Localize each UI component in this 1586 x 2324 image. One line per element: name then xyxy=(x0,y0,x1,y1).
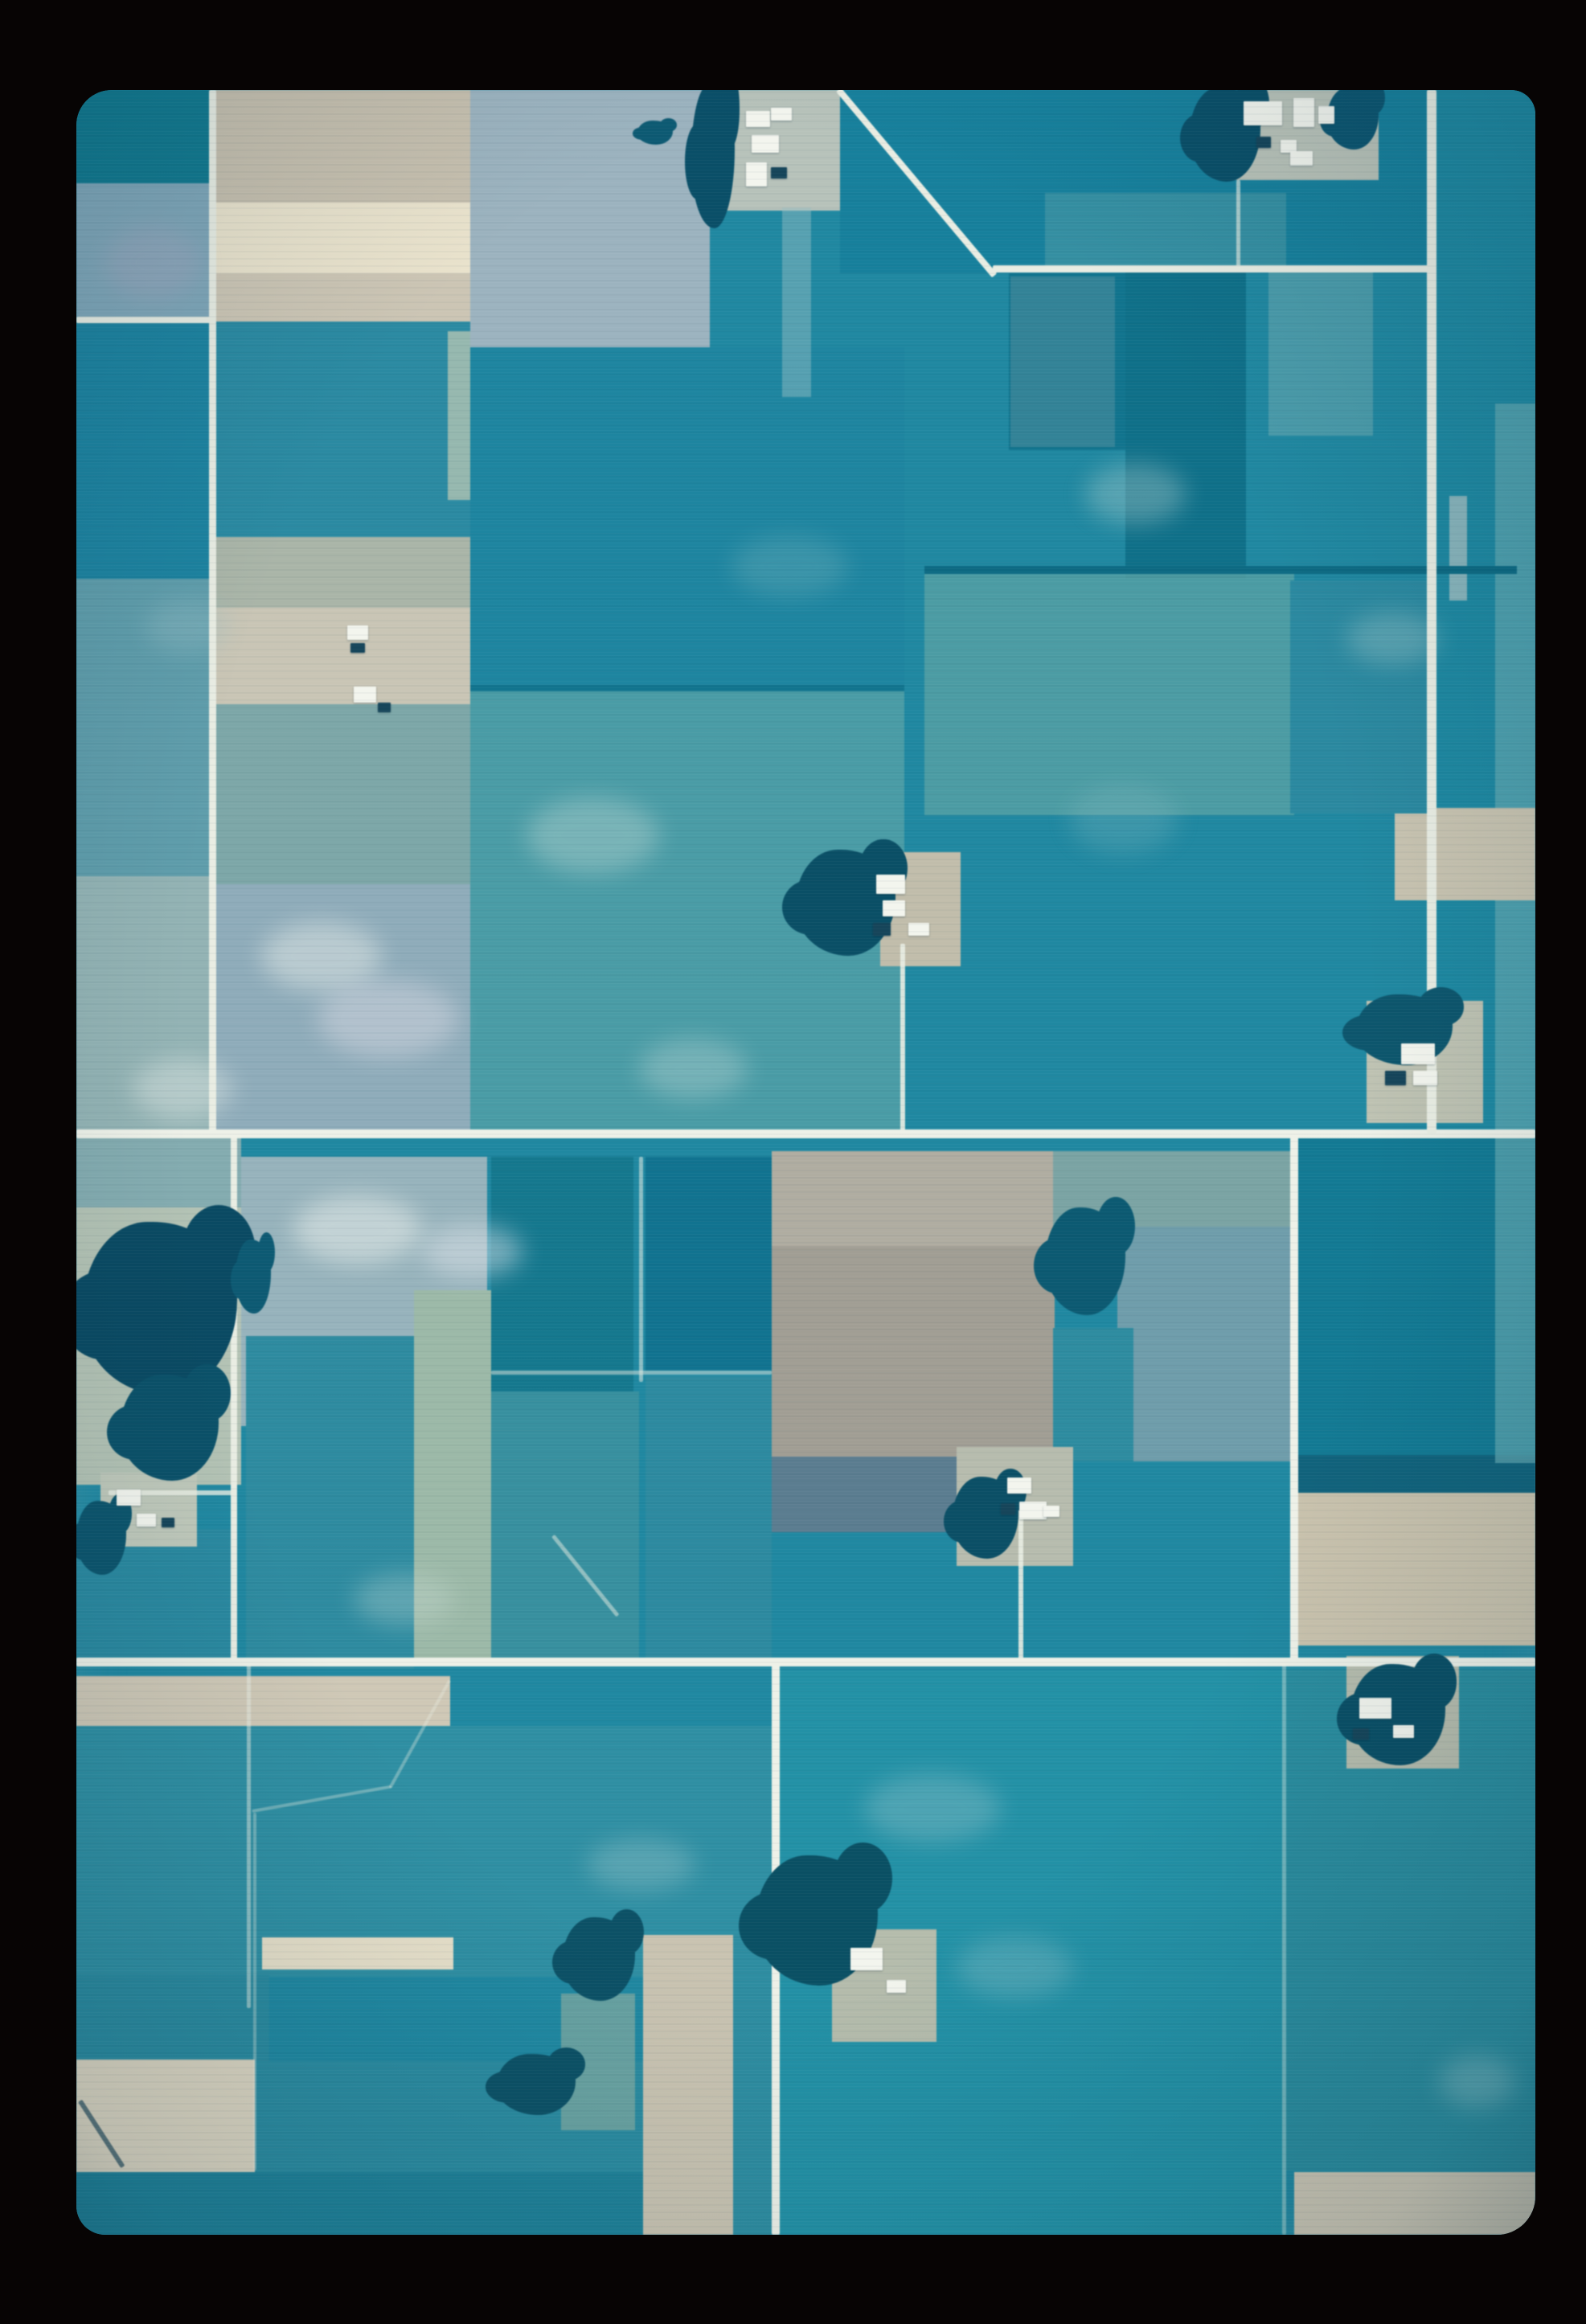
section-road xyxy=(1290,1135,1298,1662)
field-region xyxy=(733,1935,772,2235)
farm-building xyxy=(1353,1728,1369,1740)
farm-building xyxy=(887,1980,906,1993)
light-soil-patch xyxy=(261,922,382,990)
field-region xyxy=(1395,808,1535,900)
farm-building xyxy=(876,875,905,894)
light-soil-patch xyxy=(293,1195,422,1264)
field-region xyxy=(491,1392,639,1660)
tree-cluster xyxy=(796,850,895,956)
field-region xyxy=(211,608,470,704)
farm-building xyxy=(850,1948,883,1970)
light-soil-patch xyxy=(105,227,201,299)
field-region xyxy=(645,1157,772,1371)
field-region xyxy=(1117,1227,1294,1461)
light-soil-patch xyxy=(354,1573,454,1625)
light-soil-patch xyxy=(145,600,229,653)
light-soil-patch xyxy=(864,1774,1001,1842)
field-region xyxy=(215,203,470,273)
film-slide-mount: { "meta": { "type": "aerial-photo-film-s… xyxy=(0,0,1586,2324)
field-region xyxy=(76,1676,450,1726)
light-soil-patch xyxy=(1069,785,1178,854)
section-road xyxy=(253,1813,256,2170)
field-region xyxy=(76,90,211,183)
light-soil-patch xyxy=(1439,2056,1515,2108)
field-region xyxy=(1053,1328,1133,1461)
tree-cluster xyxy=(236,1240,271,1314)
light-soil-patch xyxy=(422,1225,523,1277)
field-region xyxy=(211,704,470,884)
farm-building xyxy=(354,687,376,703)
farm-building xyxy=(1393,1725,1414,1738)
farmland-scene xyxy=(76,90,1535,2235)
light-soil-patch xyxy=(527,797,659,874)
section-road xyxy=(209,90,216,1135)
field-region xyxy=(1495,404,1535,1133)
farm-building xyxy=(771,167,787,178)
field-region xyxy=(772,1151,1055,1246)
light-soil-patch xyxy=(318,981,458,1057)
farm-building xyxy=(1359,1698,1391,1719)
section-road xyxy=(76,1658,1535,1666)
field-region xyxy=(1298,1493,1535,1646)
farm-building xyxy=(873,923,891,936)
field-region xyxy=(645,1376,772,1660)
farm-building xyxy=(1001,1503,1015,1514)
section-road xyxy=(247,1664,251,2008)
field-region xyxy=(782,207,811,397)
light-soil-patch xyxy=(1085,464,1186,524)
farm-building xyxy=(347,625,368,640)
field-region xyxy=(470,347,904,688)
section-road xyxy=(1236,180,1240,268)
field-region xyxy=(1495,1133,1535,1463)
field-region xyxy=(491,1157,633,1392)
field-region xyxy=(1045,193,1286,270)
field-region xyxy=(1449,496,1467,600)
farm-building xyxy=(883,900,905,916)
farm-building xyxy=(908,923,929,936)
tree-cluster xyxy=(121,1375,219,1481)
tree-cluster xyxy=(563,1917,635,2001)
farm-building xyxy=(1293,98,1314,127)
section-road xyxy=(639,1157,643,1382)
farm-building xyxy=(117,1490,141,1506)
light-soil-patch xyxy=(1346,613,1439,665)
farm-building xyxy=(1413,1071,1437,1085)
light-soil-patch xyxy=(732,536,848,596)
farm-building xyxy=(1007,1478,1031,1494)
field-region xyxy=(1010,277,1115,447)
section-road xyxy=(993,265,1433,273)
farm-building xyxy=(752,135,779,153)
tree-cluster xyxy=(1045,1207,1125,1315)
section-road xyxy=(900,944,905,1130)
tree-cluster xyxy=(76,1501,126,1575)
farm-building xyxy=(1043,1506,1059,1517)
farm-building xyxy=(746,162,767,186)
section-road xyxy=(491,1371,772,1375)
field-region xyxy=(1268,271,1373,436)
field-region xyxy=(215,90,470,203)
farm-building xyxy=(771,108,792,121)
farm-building xyxy=(1385,1071,1406,1085)
field-region xyxy=(470,685,904,691)
field-region xyxy=(215,273,470,323)
field-region xyxy=(211,322,470,537)
light-soil-patch xyxy=(587,1838,695,1891)
section-road xyxy=(1282,1666,1286,2235)
field-region xyxy=(924,574,1294,815)
field-region xyxy=(76,322,211,579)
farm-building xyxy=(137,1514,156,1527)
section-road xyxy=(1427,90,1436,1133)
field-region xyxy=(643,1935,733,2235)
section-road xyxy=(76,1129,1535,1138)
field-region xyxy=(1294,2172,1535,2235)
farm-building xyxy=(1401,1043,1435,1064)
field-region xyxy=(76,2060,255,2172)
tree-cluster xyxy=(637,121,673,145)
light-soil-patch xyxy=(639,1039,748,1099)
light-soil-patch xyxy=(133,1059,233,1119)
field-region xyxy=(1125,265,1246,579)
tree-cluster xyxy=(497,2054,576,2115)
farm-building xyxy=(1244,101,1282,125)
aerial-photograph xyxy=(76,90,1535,2235)
farm-building xyxy=(746,111,770,127)
farm-building xyxy=(162,1518,174,1527)
light-soil-patch xyxy=(957,1937,1073,1998)
farm-building xyxy=(350,643,365,653)
farm-building xyxy=(378,703,391,712)
field-region xyxy=(262,1937,453,1969)
field-region xyxy=(211,537,470,608)
farm-building xyxy=(1019,1502,1047,1519)
farm-building xyxy=(1318,106,1334,124)
farm-building xyxy=(1256,137,1271,148)
section-road xyxy=(76,317,215,323)
farm-building xyxy=(1290,151,1313,166)
